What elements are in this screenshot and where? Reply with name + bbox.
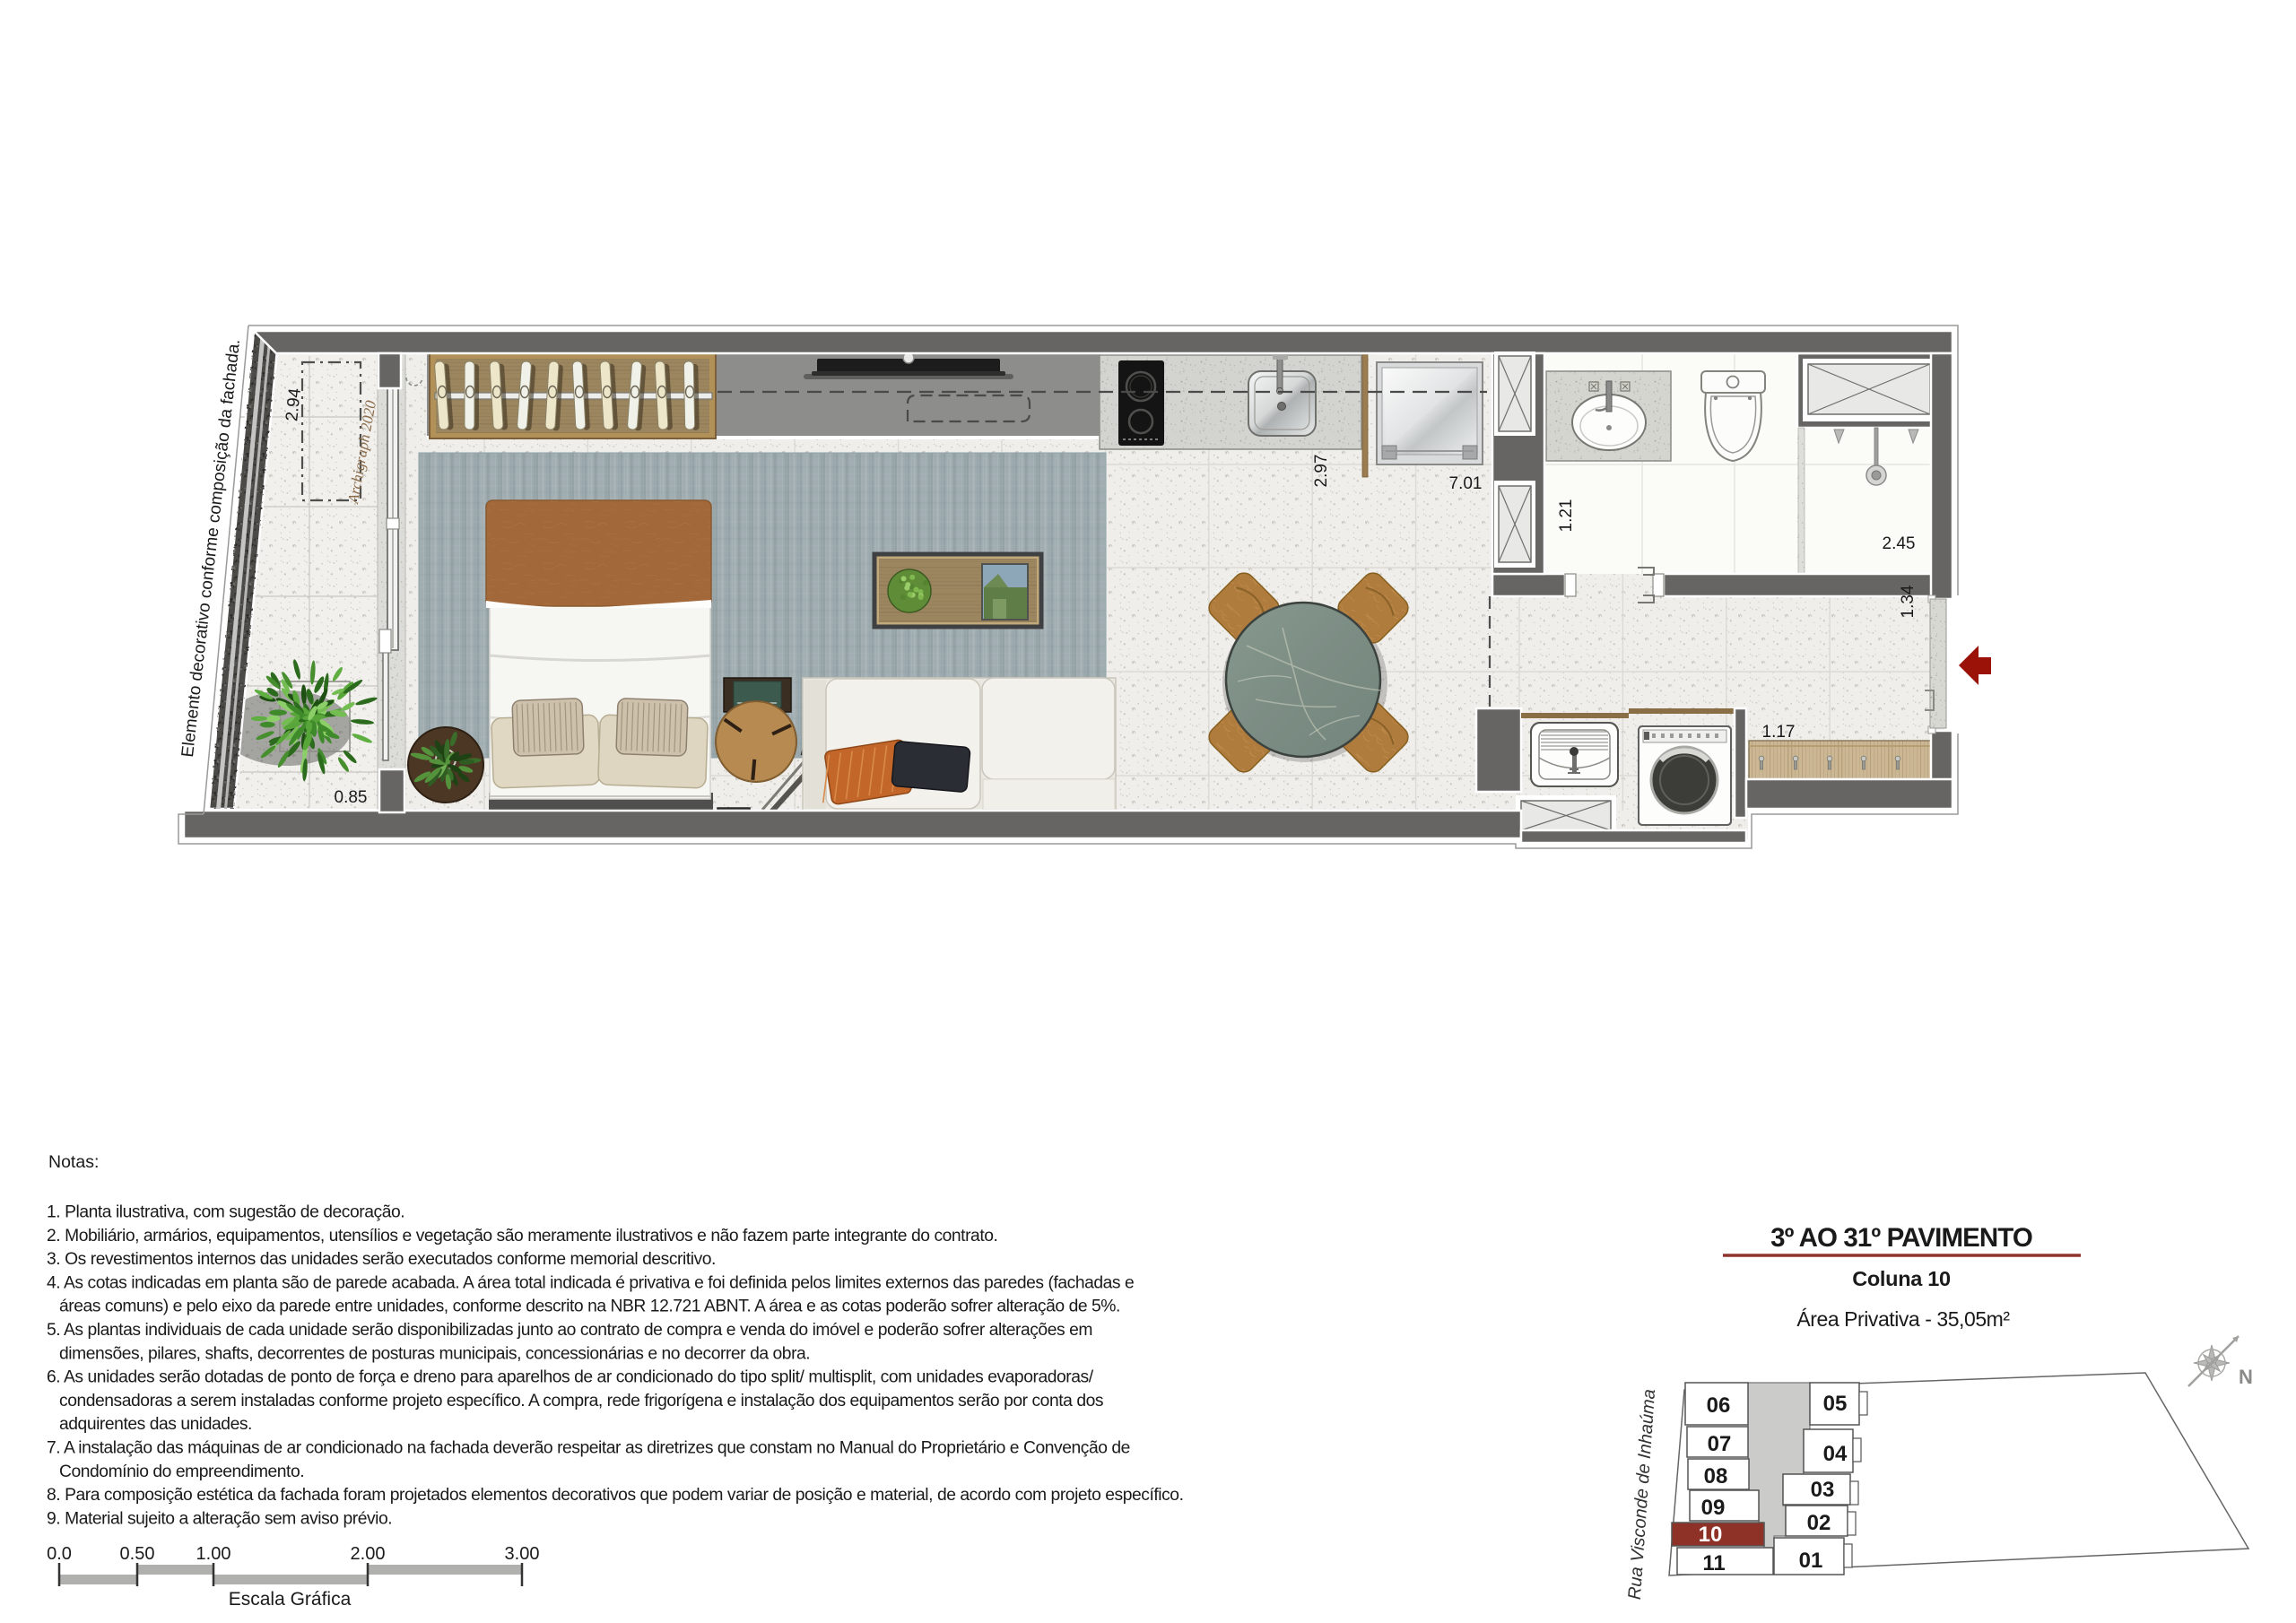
svg-text:07: 07 [1708,1432,1732,1456]
svg-text:5. As plantas individuais de c: 5. As plantas individuais de cada unidad… [47,1321,1092,1340]
svg-text:2.94: 2.94 [283,387,305,422]
svg-text:Condomínio do empreendimento.: Condomínio do empreendimento. [59,1462,304,1481]
svg-text:2.00: 2.00 [351,1544,386,1564]
svg-text:Área Privativa - 35,05m²: Área Privativa - 35,05m² [1796,1307,2010,1331]
svg-text:2. Mobiliário, armários, equip: 2. Mobiliário, armários, equipamentos, u… [47,1227,997,1245]
svg-text:Coluna 10: Coluna 10 [1852,1267,1951,1290]
svg-text:1.34: 1.34 [1899,585,1918,618]
svg-text:0.50: 0.50 [120,1544,155,1564]
svg-text:0.0: 0.0 [47,1544,72,1564]
svg-text:7. A instalação das máquinas d: 7. A instalação das máquinas de ar condi… [47,1439,1130,1458]
svg-text:Escala Gráfica: Escala Gráfica [229,1589,352,1610]
svg-text:9. Material sujeito a alteraçã: 9. Material sujeito a alteração sem avis… [47,1509,392,1528]
svg-text:condensadoras a serem instalad: condensadoras a serem instaladas conform… [59,1392,1103,1410]
svg-text:4. As cotas indicadas em plant: 4. As cotas indicadas em planta são de p… [47,1273,1134,1292]
svg-text:02: 02 [1807,1511,1831,1535]
svg-text:8. Para composição estética da: 8. Para composição estética da fachada f… [47,1486,1183,1505]
svg-text:10: 10 [1699,1523,1723,1547]
svg-text:2.97: 2.97 [1312,455,1331,488]
svg-text:áreas comuns) e pelo eixo da p: áreas comuns) e pelo eixo da parede entr… [59,1298,1120,1316]
svg-text:2.45: 2.45 [1883,534,1916,553]
svg-text:3.00: 3.00 [505,1544,540,1564]
svg-text:adquirentes das unidades.: adquirentes das unidades. [59,1415,252,1434]
svg-text:Rua Visconde de Inhaúma: Rua Visconde de Inhaúma [1625,1388,1659,1600]
svg-text:01: 01 [1799,1549,1823,1573]
svg-text:1.21: 1.21 [1557,499,1576,533]
svg-text:7.01: 7.01 [1449,474,1483,493]
svg-text:6. As unidades serão dotadas d: 6. As unidades serão dotadas de ponto de… [47,1368,1094,1387]
svg-text:3º AO 31º PAVIMENTO: 3º AO 31º PAVIMENTO [1770,1223,2032,1253]
svg-text:09: 09 [1701,1496,1726,1520]
svg-text:1. Planta ilustrativa, com sug: 1. Planta ilustrativa, com sugestão de d… [47,1203,404,1222]
svg-text:Notas:: Notas: [48,1152,99,1172]
svg-text:08: 08 [1704,1464,1728,1488]
svg-text:05: 05 [1823,1392,1848,1416]
svg-text:04: 04 [1823,1442,1848,1466]
svg-text:06: 06 [1707,1393,1731,1418]
svg-text:1.00: 1.00 [196,1544,231,1564]
svg-text:0.85: 0.85 [335,788,368,807]
svg-text:11: 11 [1702,1551,1725,1575]
svg-text:03: 03 [1811,1478,1835,1502]
svg-text:N: N [2239,1366,2253,1388]
svg-text:3. Os revestimentos internos d: 3. Os revestimentos internos das unidade… [47,1250,716,1269]
svg-text:1.17: 1.17 [1762,723,1796,742]
svg-text:dimensões, pilares, shafts, de: dimensões, pilares, shafts, decorrentes … [59,1344,810,1363]
